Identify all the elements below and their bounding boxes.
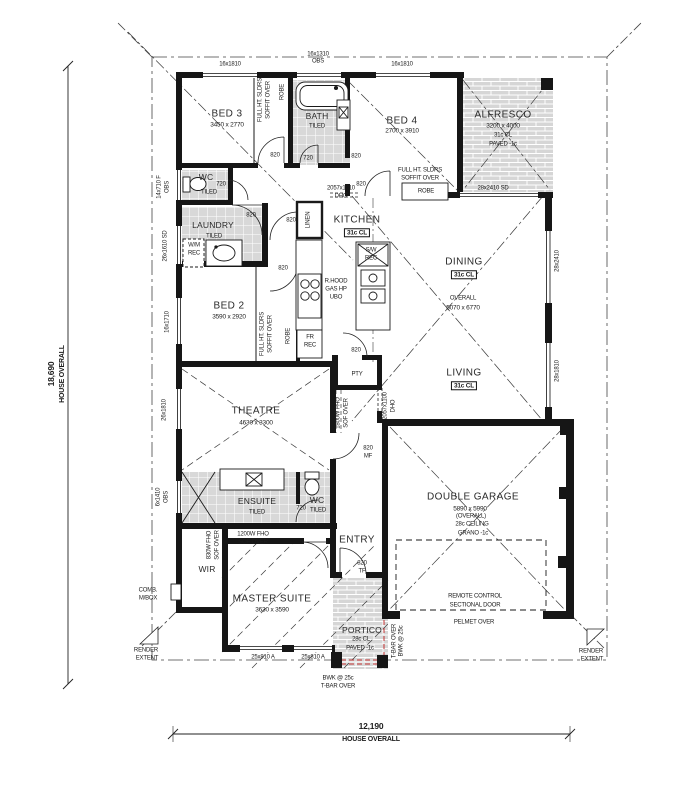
room-label-bed3: BED 3 xyxy=(212,108,243,120)
tiled-areas xyxy=(182,80,350,524)
room-finish-wc1: TILED xyxy=(201,190,217,197)
dimension-bottom-label: HOUSE OVERALL xyxy=(342,736,400,744)
note-fullht-bed2-2: SOFFIT OVER xyxy=(268,315,275,353)
rangehood-label: R.HOOD xyxy=(325,279,348,286)
window-label-bed3: 16x1810 xyxy=(219,62,241,69)
note-fho1200: 1200W FHO xyxy=(237,532,269,539)
rangehood-label2: GAS HP xyxy=(325,287,346,294)
note-fullht-bed4-2: SOFFIT OVER xyxy=(401,176,439,183)
room-label-wir: WIR xyxy=(198,565,215,575)
room-label-portico: PORTICO xyxy=(342,626,382,636)
room-finish-alfresco: PAVED -1c xyxy=(489,142,517,149)
room-dims-alfresco: 3200 x 4000 xyxy=(486,122,520,129)
room-label-wc2: WC xyxy=(310,496,325,506)
room-dims-master: 3630 x 3590 xyxy=(255,606,289,613)
render-extent-left: RENDER xyxy=(134,648,158,655)
washer-recess-label2: REC xyxy=(188,251,200,258)
note-tbar-vertical: T-BAR OVER xyxy=(392,624,399,658)
room-ceiling-alfresco: 31c CL xyxy=(494,133,512,140)
note-fullht-bed2: FULL HT. SLDRS xyxy=(260,312,267,356)
openplan-overall-label: OVERALL xyxy=(450,296,476,303)
pantry-label: PTY xyxy=(351,372,362,379)
window-label-bath: 16x1310 xyxy=(307,52,329,59)
rangehood-label3: UBO xyxy=(330,295,342,302)
door-label-alfresco-sd: 28x2410 SD xyxy=(477,186,508,193)
garage-note-floor: GRANO -1c xyxy=(458,531,488,538)
dimension-bottom-value: 12,190 xyxy=(359,722,384,732)
room-label-entry: ENTRY xyxy=(339,534,375,546)
note-garage-door-2: SECTIONAL DOOR xyxy=(450,603,501,610)
door-label-laundry: 820 xyxy=(246,213,255,220)
door-label-bed2: 820 xyxy=(278,266,287,273)
floorplan-sheet: BED 3 3450 x 2770 BATH TILED BED 4 2700 … xyxy=(0,0,687,794)
window-label-master-2: 25x810 A xyxy=(301,655,324,662)
note-fho1200-2: SOF OVER xyxy=(238,540,267,547)
ceiling-tag-living: 31c CL xyxy=(451,381,477,390)
room-label-bath: BATH xyxy=(306,112,329,122)
robe-label-bed4: ROBE xyxy=(418,189,434,196)
room-label-garage: DOUBLE GARAGE xyxy=(427,491,519,503)
ceiling-tag-dining: 31c CL xyxy=(451,270,477,279)
note-garage-door: REMOTE CONTROL xyxy=(448,594,502,601)
window-label-ensuite: 6x1410 xyxy=(156,488,163,507)
room-label-master: MASTER SUITE xyxy=(233,593,312,605)
mailbox-label2: M/BOX xyxy=(139,596,157,603)
dimension-left-label: HOUSE OVERALL xyxy=(59,345,67,403)
garage-note-overall: (OVERALL) xyxy=(456,514,486,521)
room-finish-wc2: TILED xyxy=(310,508,326,515)
mailbox-label: COMB. xyxy=(139,588,158,595)
door-label-kitchen-hall: 820 xyxy=(286,218,295,225)
window-label-ensuite-obs: OBS xyxy=(164,491,171,503)
room-dims-garage: 5890 x 5990 xyxy=(453,505,487,512)
room-label-theatre: THEATRE xyxy=(232,405,281,417)
door-label-hall: 820 xyxy=(351,154,360,161)
note-fho1800-2: SOF OVER xyxy=(344,398,351,427)
washer-recess-label: W/M xyxy=(188,243,200,250)
room-label-kitchen: KITCHEN xyxy=(334,214,381,226)
window-label-bed2: 16x1710 xyxy=(165,311,172,333)
door-label-bed4: 820 xyxy=(356,182,365,189)
note-fho830: 830W FHO xyxy=(207,531,214,559)
room-dims-bed2: 3590 x 2920 xyxy=(212,313,246,320)
fridge-recess-label2: REC xyxy=(304,343,316,350)
room-label-dining: DINING xyxy=(445,256,482,268)
door-label-hall-mf-suffix: MF xyxy=(364,454,372,461)
room-dims-bed4: 2700 x 3910 xyxy=(385,127,419,134)
room-label-ensuite: ENSUITE xyxy=(238,497,276,507)
room-label-living: LIVING xyxy=(446,367,481,379)
window-label-bed4: 16x1810 xyxy=(391,62,413,69)
render-extent-left-2: EXTENT xyxy=(136,656,158,663)
door-label-bed3: 820 xyxy=(270,153,279,160)
room-finish-bath: TILED xyxy=(309,124,325,131)
door-label-pantry: 820 xyxy=(351,348,360,355)
door-label-wc1: 720 xyxy=(216,182,225,189)
note-fho830-2: SOF OVER xyxy=(215,530,222,559)
door-label-entry-tf-suffix: TF xyxy=(359,569,366,576)
note-fullht-bed3: FULL HT. SLDRS xyxy=(258,78,265,122)
room-finish-ensuite: TILED xyxy=(249,510,265,517)
opening-label-dho1: 2057x1010 xyxy=(327,186,355,193)
room-label-laundry: LAUNDRY xyxy=(192,221,234,231)
sink-recess-label2: REC xyxy=(365,256,377,263)
note-fullht-bed3-2: SOFFIT OVER xyxy=(266,81,273,119)
note-fho1800: 1800W FHO xyxy=(336,397,343,429)
room-label-bed2: BED 2 xyxy=(214,300,245,312)
door-label-hall-mf: 820 xyxy=(363,446,372,453)
room-label-bed4: BED 4 xyxy=(387,115,418,127)
openplan-overall-dims: 5070 x 6770 xyxy=(446,304,480,311)
room-finish-portico: PAVED -1c xyxy=(346,646,374,653)
door-label-entry-tf: 820 xyxy=(357,561,366,568)
window-label-wc1: 14x710 F xyxy=(157,175,164,198)
robe-label-bed3: ROBE xyxy=(280,84,287,100)
door-label-bath: 720 xyxy=(303,156,312,163)
window-label-bath-obs: OBS xyxy=(312,59,324,66)
window-label-theatre: 26x1810 xyxy=(162,399,169,421)
window-label-laundry: 26x1610 SD xyxy=(163,230,170,261)
room-label-alfresco: ALFRESCO xyxy=(474,109,531,121)
render-extent-right-2: EXTENT xyxy=(581,657,603,664)
note-bwk: BWK @ 25c xyxy=(323,676,354,683)
fridge-recess-label: FR xyxy=(306,335,314,342)
brick-areas xyxy=(333,78,553,669)
note-bwk-2: T-BAR OVER xyxy=(321,684,355,691)
dimension-left-value: 18,690 xyxy=(47,362,57,387)
window-label-dining: 28x2410 xyxy=(555,250,562,272)
robe-label-bed2: ROBE xyxy=(286,328,293,344)
sink-recess-label: S/W xyxy=(366,248,377,255)
note-tbar-vertical-2: BWK @ 25c xyxy=(399,626,406,657)
linen-label: LINEN xyxy=(306,212,313,229)
note-pelmet: PELMET OVER xyxy=(454,620,494,627)
window-label-master-1: 25x810 A xyxy=(251,655,274,662)
window-label-living: 28x1810 xyxy=(555,360,562,382)
room-label-wc1: WC xyxy=(199,173,214,183)
note-fullht-bed4: FULL HT. SLDRS xyxy=(398,168,442,175)
opening-label-dho2-suffix: DHO xyxy=(391,400,398,413)
room-dims-theatre: 4630 x 3300 xyxy=(239,419,273,426)
ceiling-tag-kitchen: 31c CL xyxy=(344,228,370,237)
garage-note-ceiling: 28c CEILING xyxy=(455,522,488,529)
room-dims-bed3: 3450 x 2770 xyxy=(210,121,244,128)
opening-label-dho1-suffix: DHO xyxy=(335,194,348,201)
room-ceiling-portico: 28c CL xyxy=(352,637,370,644)
window-label-wc1-obs: OBS xyxy=(165,181,172,193)
opening-label-dho2: 2057x1100 xyxy=(383,392,390,419)
room-finish-laundry: TILED xyxy=(206,234,222,241)
door-label-wc2: 720 xyxy=(296,506,305,513)
render-extent-right: RENDER xyxy=(579,649,603,656)
